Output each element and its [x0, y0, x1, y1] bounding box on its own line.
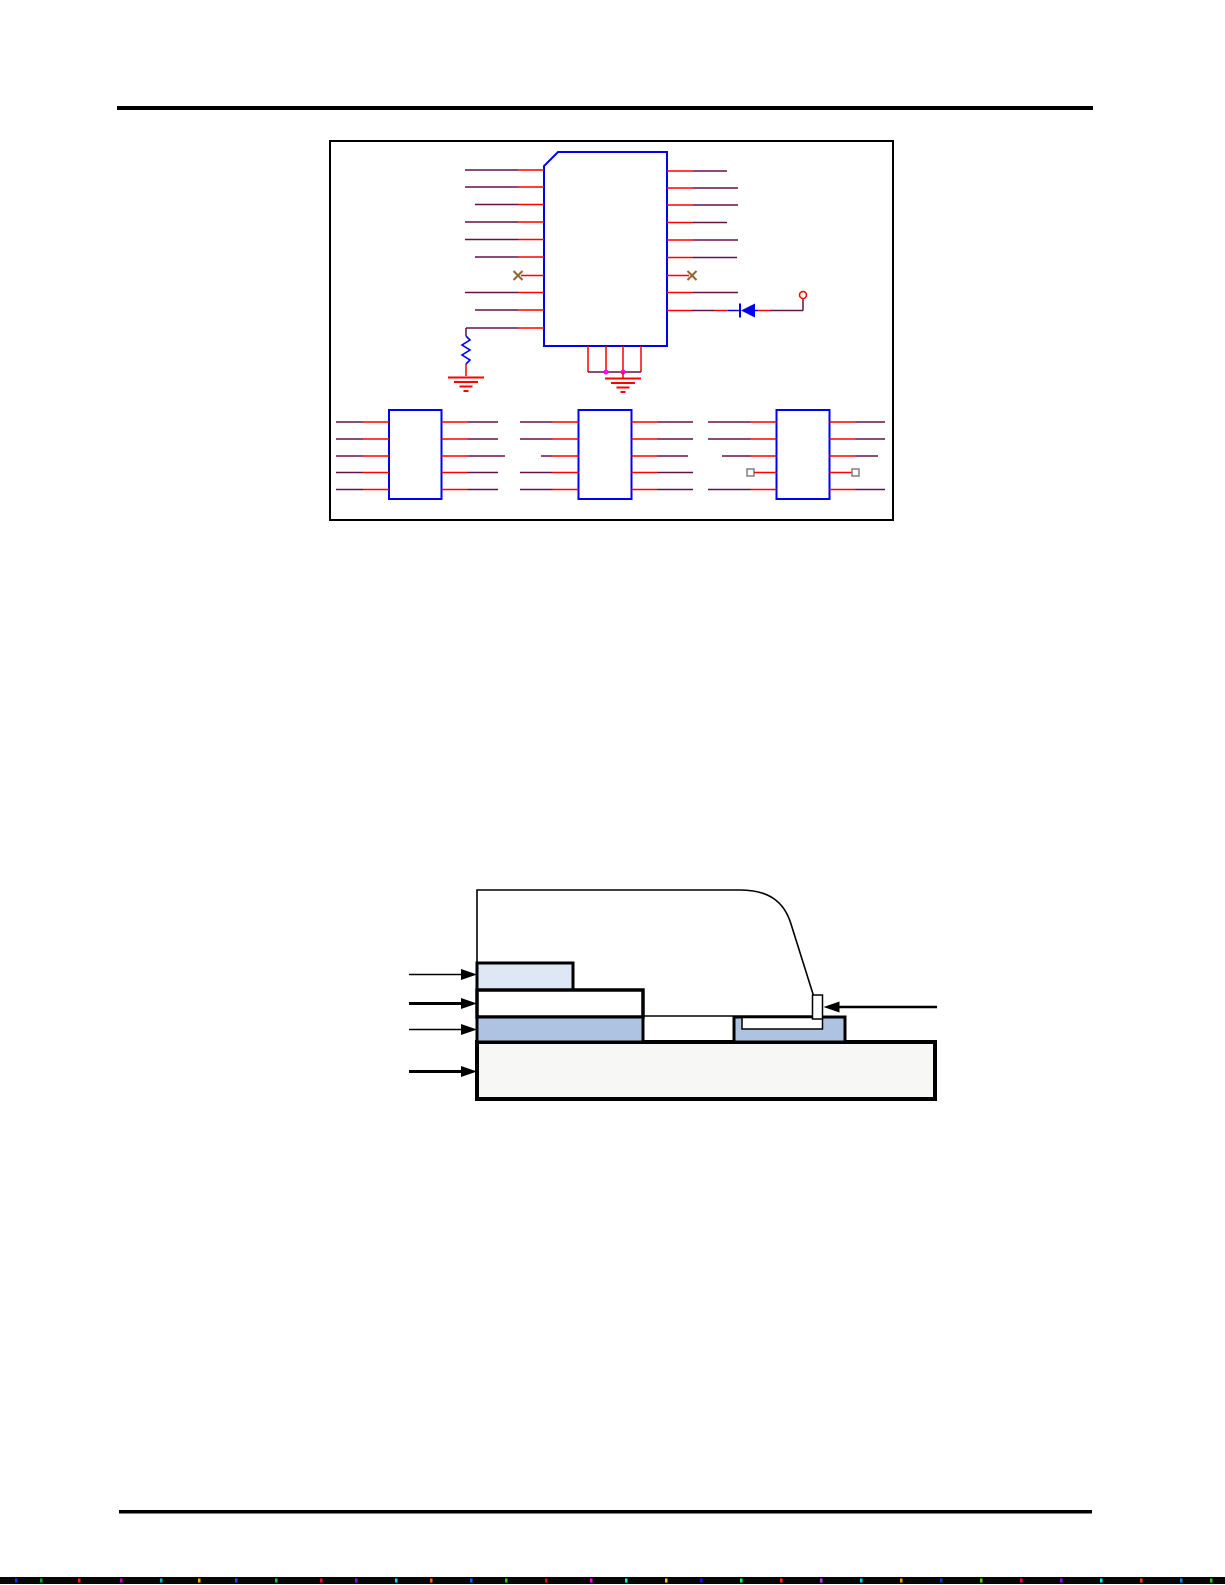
layer-top — [477, 963, 573, 990]
noise-speck — [545, 1579, 548, 1583]
callout-arrowhead-icon — [461, 998, 477, 1009]
noise-speck — [900, 1579, 903, 1583]
noise-speck — [590, 1579, 593, 1583]
noise-speck — [700, 1579, 703, 1583]
callout-arrowhead-icon — [824, 1002, 840, 1013]
noise-speck — [780, 1579, 783, 1583]
callout-arrowhead-icon — [461, 1024, 477, 1035]
open-terminal-circle — [800, 292, 807, 299]
port-square — [747, 469, 754, 476]
noise-speck — [78, 1579, 81, 1583]
noise-speck — [430, 1579, 433, 1583]
noise-speck — [1060, 1579, 1063, 1583]
main-ic-body — [544, 152, 667, 346]
noise-speck — [320, 1579, 323, 1583]
noise-speck — [470, 1579, 473, 1583]
edge-tab — [813, 995, 823, 1019]
noise-speck — [1140, 1579, 1143, 1583]
document-page — [0, 0, 1225, 1585]
port-square — [852, 469, 859, 476]
noise-speck — [740, 1579, 743, 1583]
noise-speck — [120, 1579, 123, 1583]
sub-ic-body — [389, 410, 442, 499]
noise-speck — [1020, 1579, 1023, 1583]
noise-speck — [665, 1579, 668, 1583]
callout-arrowhead-icon — [461, 969, 477, 980]
noise-speck — [395, 1579, 398, 1583]
layer-middle — [477, 990, 643, 1017]
noise-speck — [275, 1579, 278, 1583]
noise-speck — [15, 1579, 18, 1583]
noise-speck — [940, 1579, 943, 1583]
noise-speck — [1180, 1579, 1183, 1583]
noise-speck — [860, 1579, 863, 1583]
footer-rule — [119, 1510, 1092, 1514]
junction-dot — [604, 370, 609, 375]
noise-speck — [355, 1579, 358, 1583]
sub-ic-body — [777, 410, 830, 499]
callout-arrowhead-icon — [461, 1066, 477, 1077]
sub-ic-body — [579, 410, 632, 499]
noise-speck — [40, 1579, 43, 1583]
substrate-layer — [477, 1042, 935, 1099]
noise-speck — [1100, 1579, 1103, 1583]
header-rule — [117, 106, 1093, 110]
noise-speck — [625, 1579, 628, 1583]
schematic-figure — [330, 141, 893, 520]
noise-speck — [160, 1579, 163, 1583]
cross-section-figure — [409, 890, 937, 1099]
scan-noise-bar — [0, 1577, 1225, 1584]
layer-bottom — [477, 1017, 643, 1042]
noise-speck — [1210, 1579, 1213, 1583]
noise-speck — [505, 1579, 508, 1583]
noise-speck — [198, 1579, 201, 1583]
noise-speck — [235, 1579, 238, 1583]
noise-speck — [980, 1579, 983, 1583]
noise-speck — [820, 1579, 823, 1583]
inset-tray — [742, 1018, 823, 1030]
page-canvas — [0, 0, 1225, 1585]
